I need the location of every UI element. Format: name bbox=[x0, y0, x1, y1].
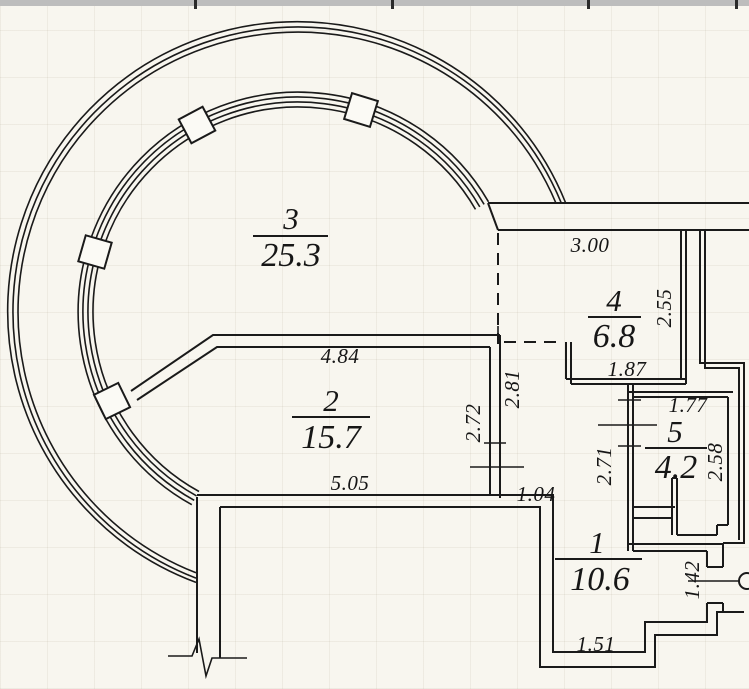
room-number: 5 bbox=[667, 414, 683, 449]
outer-arc-line bbox=[8, 22, 566, 583]
room-area: 4.2 bbox=[655, 449, 698, 486]
dimension-room1-door: 1.42 bbox=[680, 561, 704, 600]
dashed-boundary bbox=[498, 233, 562, 344]
room-area: 10.6 bbox=[570, 561, 630, 598]
room-area: 15.7 bbox=[301, 419, 363, 456]
window-band-line bbox=[88, 102, 480, 496]
window-mullions bbox=[78, 93, 378, 419]
wall-line bbox=[700, 230, 744, 543]
wall-break-symbol bbox=[168, 639, 247, 676]
scanner-tick bbox=[194, 0, 197, 9]
scanner-edge-strip bbox=[0, 0, 749, 9]
wall-line bbox=[220, 507, 744, 667]
dimension-opening: 1.04 bbox=[517, 482, 556, 506]
wall-line bbox=[137, 347, 490, 400]
room-number: 3 bbox=[282, 201, 299, 236]
room-number: 4 bbox=[606, 283, 622, 318]
wall-line bbox=[488, 203, 498, 230]
dimension-room2-bottom: 5.05 bbox=[331, 471, 370, 495]
dimension-room4-bottom: 1.87 bbox=[608, 357, 648, 381]
room-number: 1 bbox=[589, 525, 605, 560]
window-mullion bbox=[78, 235, 111, 268]
window-mullion bbox=[179, 107, 216, 144]
dimension-room1-bottom: 1.51 bbox=[577, 632, 616, 656]
outer-arc-line bbox=[18, 32, 556, 573]
wall-line bbox=[677, 525, 728, 535]
scanner-tick bbox=[587, 0, 590, 9]
dimension-labels: 3.00 2.55 1.87 1.77 2.81 2.72 2.71 2.58 … bbox=[321, 233, 727, 656]
scanner-tick bbox=[735, 0, 738, 9]
outer-wall-arcs bbox=[8, 22, 566, 583]
dimension-room5-right: 2.58 bbox=[703, 443, 727, 482]
door-swing-circle bbox=[739, 573, 749, 589]
scanner-tick bbox=[391, 0, 394, 9]
room-number: 2 bbox=[323, 383, 339, 418]
wall-line bbox=[131, 335, 500, 391]
scanner-bar bbox=[0, 0, 749, 6]
floor-plan-drawing: 3 25.3 2 15.7 4 6.8 5 4.2 1 10.6 3.00 2.… bbox=[0, 0, 749, 689]
room-4-label: 4 6.8 bbox=[588, 283, 641, 355]
wall-line bbox=[197, 495, 707, 652]
dimension-room5-top: 1.77 bbox=[669, 393, 709, 417]
window-mullion bbox=[94, 383, 130, 419]
dimension-room2-right: 2.72 bbox=[461, 404, 485, 443]
room-area: 6.8 bbox=[593, 318, 636, 355]
room-area: 25.3 bbox=[261, 237, 321, 274]
window-band-line bbox=[93, 107, 475, 491]
door-jamb-upper bbox=[707, 543, 723, 567]
dimension-room5-left: 2.71 bbox=[592, 447, 616, 486]
room-2-label: 2 15.7 bbox=[292, 383, 370, 456]
walls bbox=[131, 203, 749, 667]
window-band-line bbox=[83, 97, 484, 500]
dimension-room4-top: 3.00 bbox=[570, 233, 610, 257]
dimension-room4-right: 2.55 bbox=[652, 289, 676, 328]
break-zigzag bbox=[168, 639, 247, 676]
wall-line bbox=[705, 230, 739, 540]
window-band-arcs bbox=[78, 92, 488, 505]
dimension-hall-left: 2.81 bbox=[500, 370, 524, 409]
dimension-room2-top: 4.84 bbox=[321, 344, 360, 368]
room-3-label: 3 25.3 bbox=[253, 201, 328, 274]
door-jamb-lower bbox=[707, 603, 723, 612]
floor-plan-scan: 3 25.3 2 15.7 4 6.8 5 4.2 1 10.6 3.00 2.… bbox=[0, 0, 749, 689]
